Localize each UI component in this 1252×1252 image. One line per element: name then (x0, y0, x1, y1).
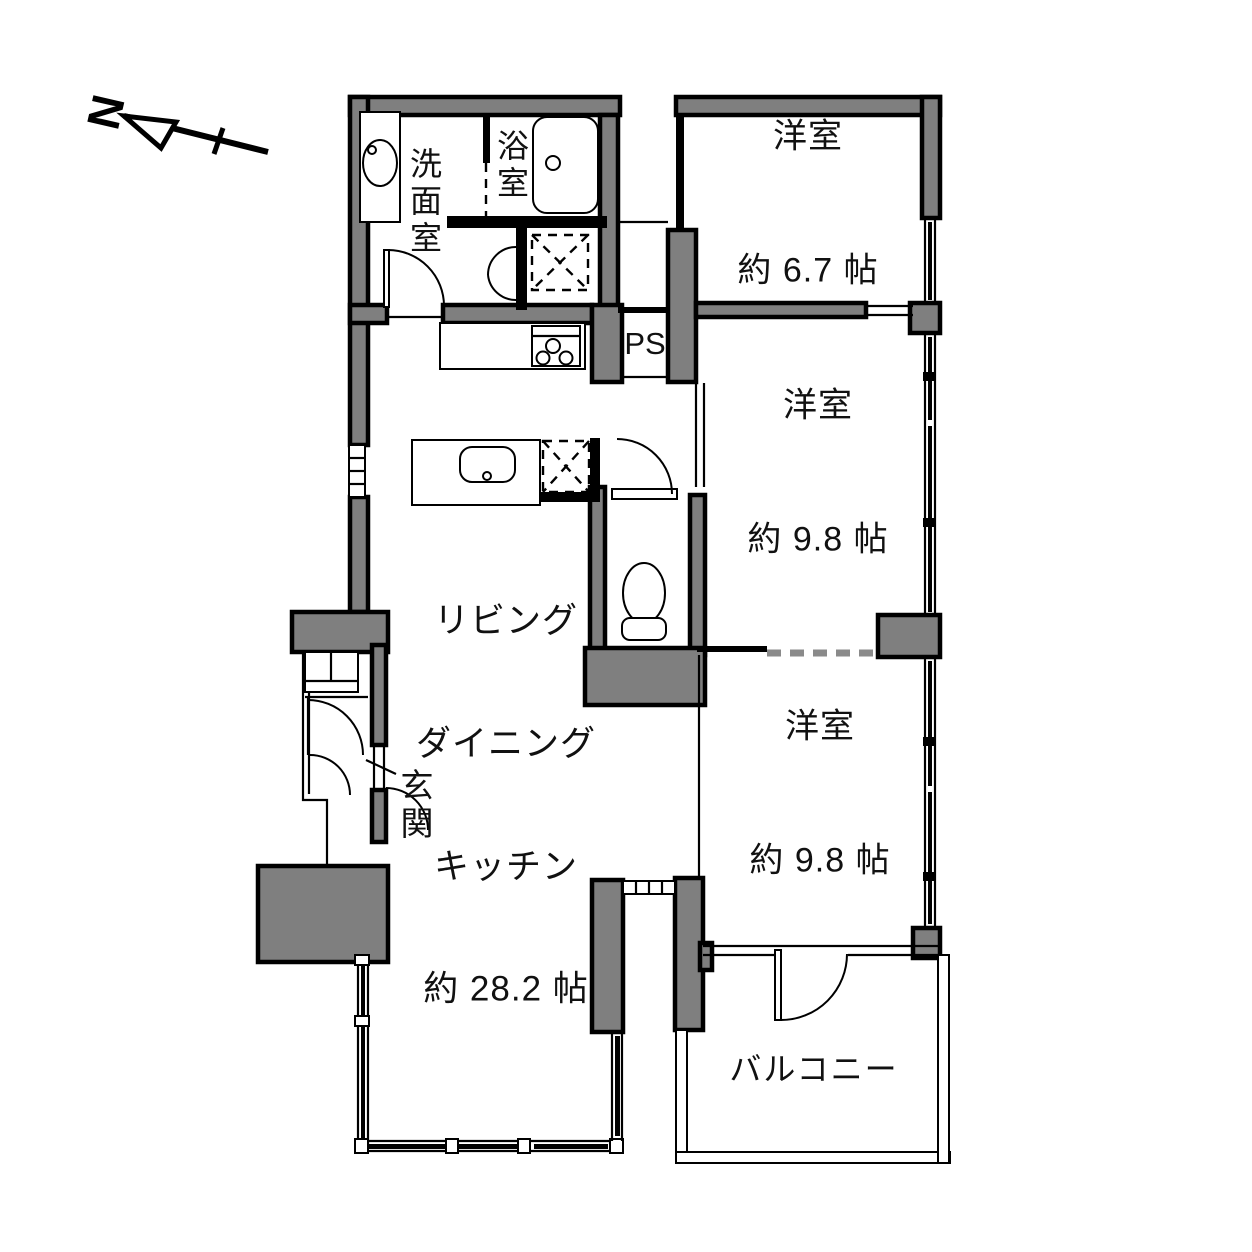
toilet-fixtures (612, 439, 677, 640)
toilet-icon (623, 563, 665, 623)
entrance-label: 玄関 (390, 768, 438, 844)
toilet-door-arc (617, 439, 672, 494)
balcony-label: バルコニー (729, 1044, 898, 1090)
bedroom1-name: 洋室 (737, 114, 878, 159)
ldk-label: リビング ダイニング キッチン 約 28.2 帖 (416, 519, 596, 1092)
washroom-door-arc (388, 250, 444, 306)
bathroom-label: 浴室 (488, 129, 534, 203)
bedroom2-label: 洋室 約 9.8 帖 (747, 294, 888, 653)
washroom-fixtures (360, 112, 598, 317)
bedroom1-size: 約 6.7 帖 (737, 249, 878, 294)
bedroom3-name: 洋室 (749, 704, 890, 749)
bedroom3-size: 約 9.8 帖 (749, 839, 890, 884)
bathtub-icon (533, 117, 598, 213)
bedroom2-size: 約 9.8 帖 (747, 518, 888, 563)
washroom-label: 洗面室 (401, 147, 447, 258)
bedroom2-name: 洋室 (747, 383, 888, 428)
entrance-door-arc (308, 700, 363, 755)
floor-plan-drawing: N (0, 0, 1252, 1252)
ldk-size: 約 28.2 帖 (416, 970, 596, 1011)
ldk-line1: リビング (416, 601, 596, 642)
ldk-line2: ダイニング (416, 724, 596, 765)
north-label: N (77, 90, 135, 134)
kitchen-fixtures (412, 323, 589, 505)
bifold-door-icon (488, 247, 516, 275)
pipe-space-label: PS (624, 326, 665, 362)
ldk-line3: キッチン (416, 847, 596, 888)
floor-plan: N 洗面室 浴室 洋室 約 6.7 帖 PS 洋室 約 9.8 帖 洋室 約 9… (0, 0, 1252, 1252)
north-arrow-icon: N (77, 90, 268, 154)
bedroom3-label: 洋室 約 9.8 帖 (749, 615, 890, 974)
